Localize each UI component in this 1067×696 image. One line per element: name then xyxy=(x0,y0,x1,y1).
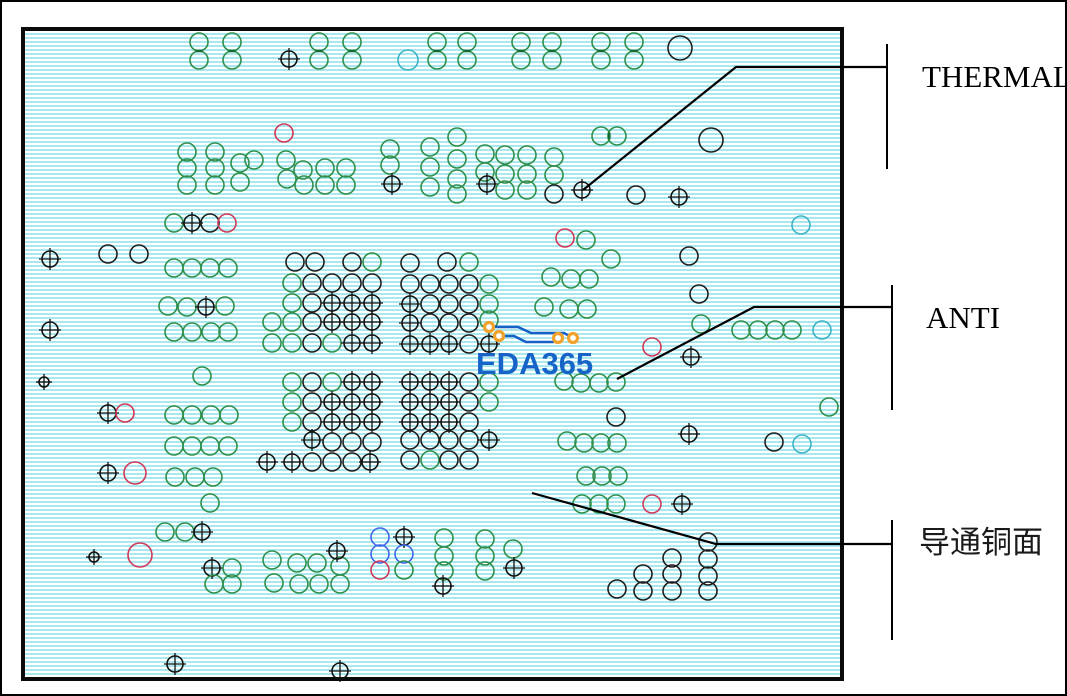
eda365-watermark: EDA365 xyxy=(476,346,593,382)
label-anti: ANTI xyxy=(926,301,1000,335)
label-copper-plane: 导通铜面 xyxy=(919,526,1043,560)
label-thermal: THERMAL xyxy=(922,60,1067,94)
pcb-screenshot-canvas: EDA365 THERMAL ANTI 导通铜面 xyxy=(0,0,1067,696)
pcb-copper-plane xyxy=(21,27,844,681)
